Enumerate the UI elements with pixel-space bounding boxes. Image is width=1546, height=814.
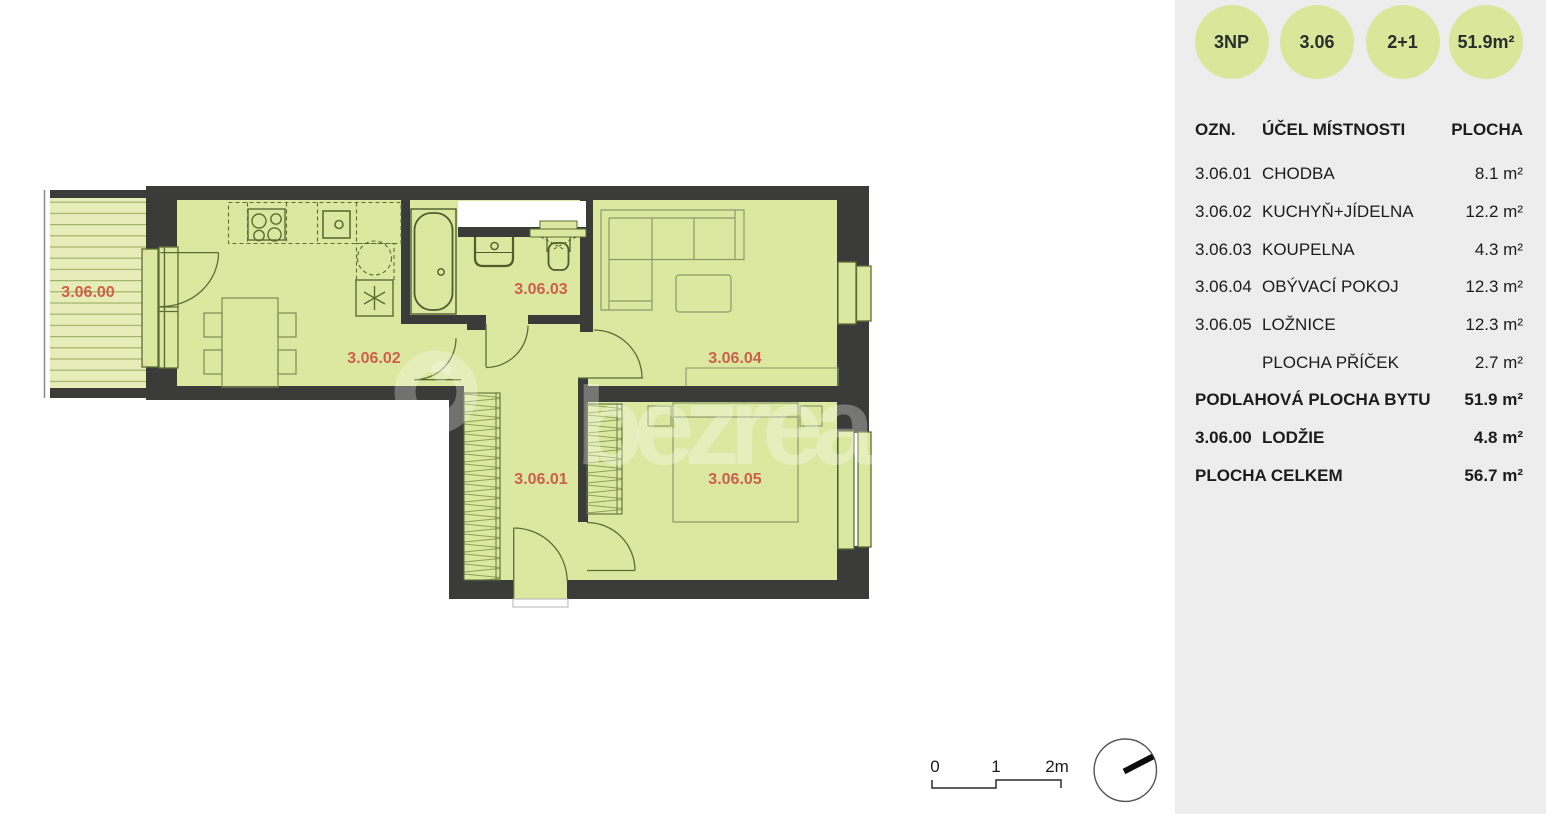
- svg-text:bezrea: bezrea: [576, 365, 875, 488]
- svg-text:3.06.01: 3.06.01: [514, 471, 567, 488]
- svg-text:3.06.02: 3.06.02: [347, 350, 400, 367]
- svg-text:3.06.03: 3.06.03: [514, 281, 567, 298]
- svg-text:0: 0: [930, 757, 939, 776]
- svg-text:3.06.00: 3.06.00: [61, 284, 114, 301]
- svg-text:2m: 2m: [1045, 757, 1069, 776]
- svg-text:1: 1: [991, 757, 1000, 776]
